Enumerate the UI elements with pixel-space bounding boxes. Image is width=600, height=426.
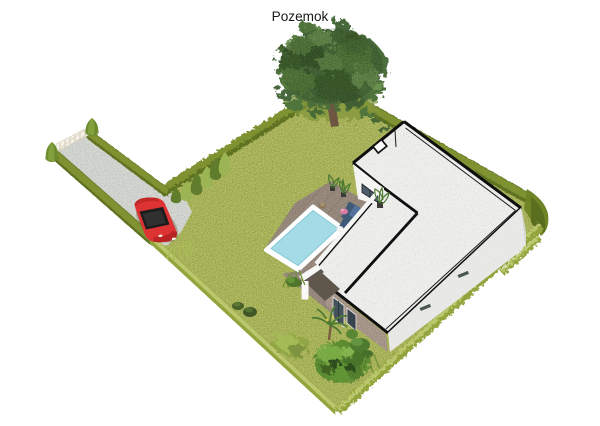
svg-text:Pozemok: Pozemok: [272, 9, 329, 24]
